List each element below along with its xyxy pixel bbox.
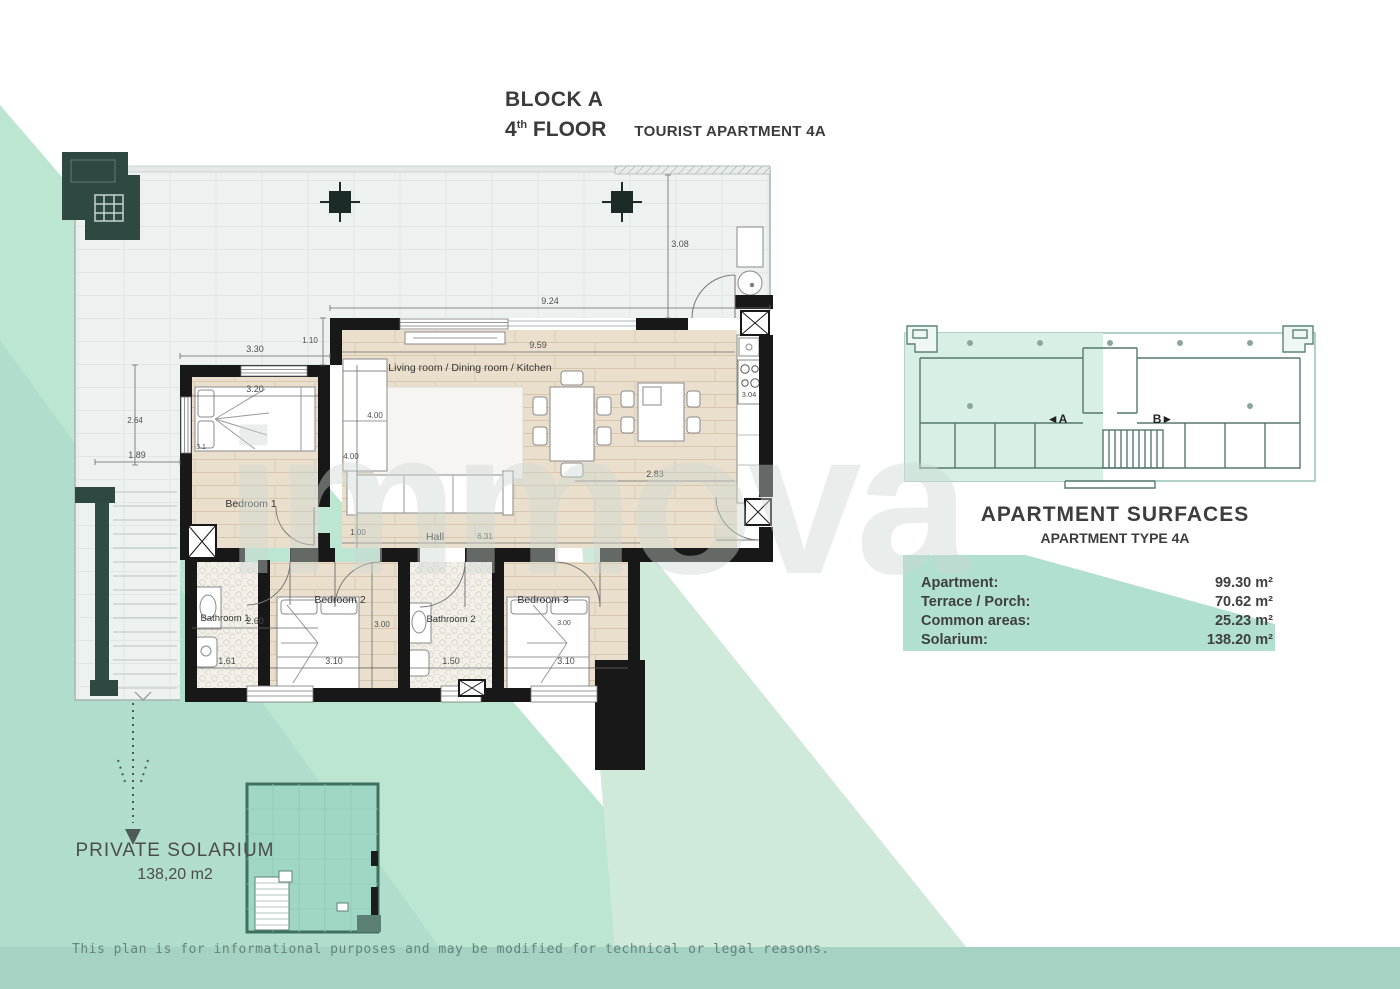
- dim-bathroom2-width: 1.50: [442, 656, 460, 666]
- room-label-hall: Hall: [426, 531, 444, 543]
- solarium-detail: [337, 903, 348, 911]
- room-label-bathroom1: Bathroom 1: [200, 613, 249, 624]
- dim-hall-length: 6.31: [477, 532, 493, 541]
- key-plan-unit-a-highlight: [905, 333, 1103, 481]
- surfaces-row-common: Common areas: 25.23 m²: [921, 612, 1273, 631]
- bed2: [277, 597, 359, 689]
- floor-plan: 3.30 1.10 9.24 3.08 9.59 3.20 4.00 4.00 …: [55, 135, 795, 855]
- rug: [373, 387, 523, 479]
- shaft-x-bedroom1: [188, 525, 216, 558]
- dim-hall-entry: 1.00: [350, 528, 366, 537]
- dim-bedroom3-bed: 3.00: [557, 620, 571, 627]
- kitchen-counter: [737, 335, 761, 503]
- room-label-bedroom3: Bedroom 3: [517, 594, 569, 606]
- solarium-area: 138,20 m2: [40, 866, 310, 884]
- dim-terrace-left-depth: 2.64: [127, 416, 143, 425]
- dim-bedroom3-width: 3.10: [557, 656, 575, 666]
- terrace-basin: [737, 227, 763, 295]
- room-label-bedroom2: Bedroom 2: [314, 594, 366, 606]
- bathroom1-fixtures: [195, 587, 221, 667]
- sliding-glass-door: [508, 321, 636, 326]
- surfaces-rows: Apartment: 99.30 m² Terrace / Porch: 70.…: [895, 568, 1335, 656]
- dim-bedrooms-depth: 3.00: [374, 620, 390, 629]
- dim-bathroom1-width: 1.61: [218, 656, 236, 666]
- dim-living-left-depth: 4.00: [367, 411, 383, 420]
- dim-entrance-width: 2.83: [646, 469, 664, 479]
- dim-living-top-outer: 9.24: [541, 296, 559, 306]
- page: BLOCK A 4th FLOOR TOURIST APARTMENT 4A: [0, 0, 1400, 989]
- bed3: [507, 597, 589, 689]
- block-title: BLOCK A: [505, 88, 826, 112]
- room-label-bathroom2: Bathroom 2: [426, 614, 475, 625]
- dim-kitchen-depth: 3.04: [742, 390, 757, 399]
- solarium-corner-block: [357, 915, 381, 932]
- surfaces-row-solarium: Solarium: 138.20 m²: [921, 631, 1273, 650]
- stair-core: [62, 152, 140, 240]
- dim-bedroom1-top-outer: 3.30: [246, 344, 264, 354]
- shaft-x-duct-right: [741, 311, 769, 335]
- key-plan-unit-b-label: B►: [1153, 412, 1174, 426]
- railing: [615, 166, 770, 174]
- surfaces-subtitle: APARTMENT TYPE 4A: [895, 530, 1335, 546]
- dim-terrace-offset: 1.10: [302, 336, 318, 345]
- dim-terrace-left-width: 1.89: [128, 450, 146, 460]
- shaft-x-entrance: [745, 499, 771, 525]
- bed1: [195, 387, 315, 451]
- solarium-title: PRIVATE SOLARIUM: [40, 840, 310, 862]
- disclaimer-text: This plan is for informational purposes …: [72, 942, 830, 957]
- solarium-door-mark-1: [371, 851, 378, 866]
- solarium-callout: PRIVATE SOLARIUM 138,20 m2: [40, 840, 310, 884]
- key-plan-unit-a-label: ◄A: [1047, 412, 1068, 426]
- dim-living-top-inner: 9.59: [529, 340, 547, 350]
- key-plan: ◄A B►: [895, 318, 1325, 498]
- dim-bedroom2-width: 3.10: [325, 656, 343, 666]
- surfaces-panel: APARTMENT SURFACES APARTMENT TYPE 4A Apa…: [895, 503, 1335, 656]
- room-label-living: Living room / Dining room / Kitchen: [388, 362, 552, 374]
- building-core: [595, 660, 645, 770]
- surfaces-row-terrace: Terrace / Porch: 70.62 m²: [921, 593, 1273, 612]
- floor-title: 4th FLOOR: [505, 118, 606, 142]
- dim-terrace-depth: 3.08: [671, 239, 689, 249]
- solarium-arrow-icon: [118, 703, 148, 845]
- room-label-bedroom1: Bedroom 1: [225, 498, 277, 510]
- dim-bedroom1-width: 3.20: [246, 384, 264, 394]
- shaft-x-core: [459, 680, 485, 696]
- dim-bedroom1-depth: 4.00: [343, 452, 359, 461]
- title-block: BLOCK A 4th FLOOR TOURIST APARTMENT 4A: [505, 88, 826, 142]
- surfaces-title: APARTMENT SURFACES: [895, 503, 1335, 527]
- apartment-title: TOURIST APARTMENT 4A: [634, 123, 826, 140]
- surfaces-row-apartment: Apartment: 99.30 m²: [921, 574, 1273, 593]
- tv-bench: [405, 332, 505, 344]
- solarium-door-mark-2: [371, 887, 378, 915]
- dim-bed1-width: 3.1: [196, 444, 206, 451]
